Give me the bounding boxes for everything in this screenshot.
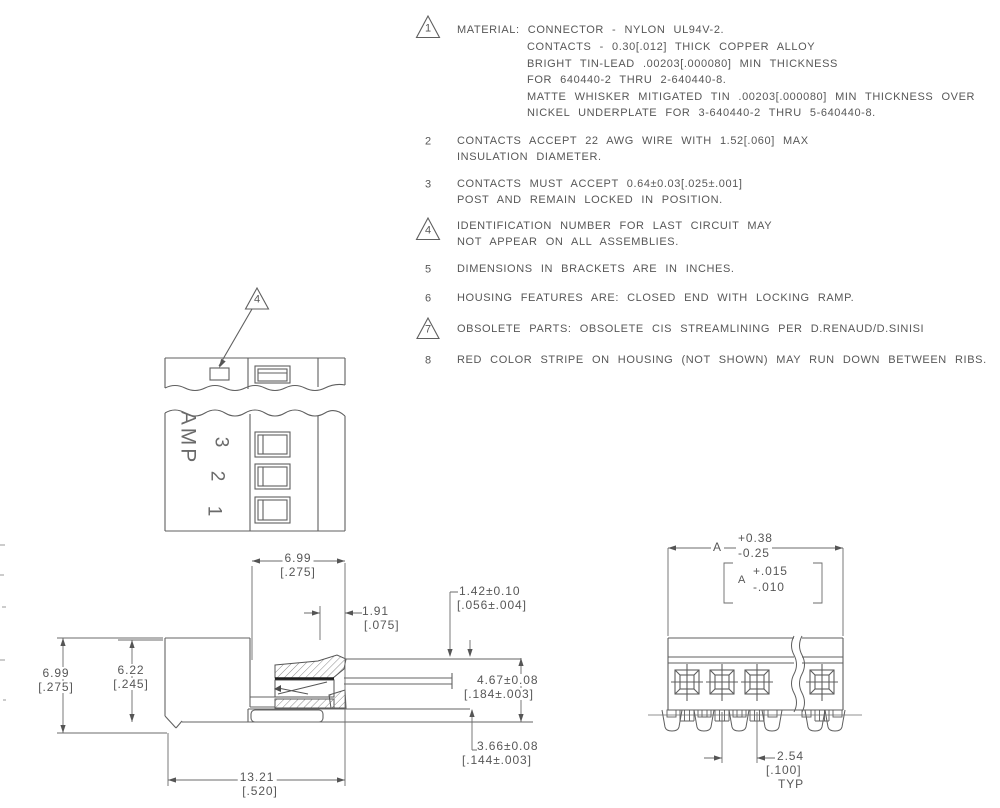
note-7-line-1: OBSOLETE PARTS: OBSOLETE CIS STREAMLININ… — [457, 324, 924, 335]
inch-bracket-left — [724, 563, 733, 603]
note-1-line-1: MATERIAL: CONNECTOR - NYLON UL94V-2. — [457, 25, 724, 36]
contact-cavity-last — [806, 664, 838, 701]
note-8-line-1: RED COLOR STRIPE ON HOUSING (NOT SHOWN) … — [457, 355, 987, 366]
margin-marks — [0, 545, 6, 700]
engineering-drawing-sheet: 1 MATERIAL: CONNECTOR - NYLON UL94V-2. C… — [0, 0, 1000, 808]
note-3-line-2: POST AND REMAIN LOCKED IN POSITION. — [457, 195, 723, 206]
note-4-line-2: NOT APPEAR ON ALL ASSEMBLIES. — [457, 237, 679, 248]
break-gap — [794, 637, 802, 709]
bottom-ribs — [667, 710, 842, 721]
note-6-number: 6 — [425, 294, 431, 305]
dim-inner-height-in: [.245] — [111, 678, 150, 690]
note-balloon-triangles — [417, 16, 440, 339]
dim-offset-in: [.075] — [364, 619, 399, 631]
brand-marking: AMP — [178, 411, 199, 466]
note-4-number: 4 — [425, 226, 431, 237]
circuit-id-recess — [210, 368, 229, 380]
circuit-number-2: 2 — [208, 471, 227, 482]
dim-pitch-mm: 2.54 — [777, 750, 804, 762]
dim-tab-in: [.056±.004] — [457, 599, 527, 611]
contact-cavity-3 — [741, 664, 773, 701]
note-8-number: 8 — [425, 356, 431, 367]
dim-a-label: A — [711, 541, 724, 553]
dim-inner-height-mm: 6.22 — [116, 664, 147, 676]
inch-bracket-right — [813, 563, 822, 603]
note-3-line-1: CONTACTS MUST ACCEPT 0.64±0.03[.025±.001… — [457, 179, 743, 190]
front-view — [662, 638, 845, 731]
dim-a-inch-minus: -.010 — [753, 581, 785, 593]
note-1-line-6: NICKEL UNDERPLATE FOR 3-640440-2 THRU 5-… — [527, 108, 876, 119]
note-1-line-5: MATTE WHISKER MITIGATED TIN .00203[.0000… — [527, 92, 975, 103]
section-view-contact — [274, 655, 346, 708]
dim-pitch-in: [.100] — [766, 764, 801, 776]
dim-tab-mm: 1.42±0.10 — [459, 585, 520, 597]
dim-offset-mm: 1.91 — [362, 605, 389, 617]
note-2-number: 2 — [425, 137, 431, 148]
dim-a-inch-label: A — [738, 575, 746, 586]
note-6-line-1: HOUSING FEATURES ARE: CLOSED END WITH LO… — [457, 293, 854, 304]
note-5-line-1: DIMENSIONS IN BRACKETS ARE IN INCHES. — [457, 264, 735, 275]
dim-lead-depth-mm: 3.66±0.08 — [477, 740, 538, 752]
dim-cavity-width-in: [.275] — [278, 566, 317, 578]
note-2-line-1: CONTACTS ACCEPT 22 AWG WIRE WITH 1.52[.0… — [457, 136, 809, 147]
dim-a-inch-plus: +.015 — [753, 565, 788, 577]
note-1-number: 1 — [425, 24, 431, 35]
dim-housing-height-mm: 6.99 — [41, 667, 72, 679]
dim-post-depth-in: [.184±.003] — [462, 688, 536, 700]
note-2-line-2: INSULATION DIAMETER. — [457, 152, 602, 163]
note-1-line-3: BRIGHT TIN-LEAD .00203[.000080] MIN THIC… — [527, 59, 838, 70]
circuit-number-1: 1 — [205, 506, 224, 517]
dim-a-minus: -0.25 — [736, 547, 772, 559]
dim-housing-height-in: [.275] — [36, 681, 75, 693]
contact-cavity-1 — [671, 664, 703, 701]
note-4-line-1: IDENTIFICATION NUMBER FOR LAST CIRCUIT M… — [457, 221, 772, 232]
note-5-number: 5 — [425, 265, 431, 276]
note-3-number: 3 — [425, 180, 431, 191]
dim-pitch-typ: TYP — [778, 778, 804, 790]
contact-bottom-hatched — [275, 699, 334, 708]
note-1-line-2: CONTACTS - 0.30[.012] THICK COPPER ALLOY — [527, 42, 815, 53]
dim-post-depth-mm: 4.67±0.08 — [475, 674, 540, 686]
circuit-number-3: 3 — [212, 437, 231, 448]
contact-top-hatched — [275, 655, 346, 678]
dim-overall-length-mm: 13.21 — [238, 771, 277, 783]
dim-lead-depth-in: [.144±.003] — [462, 754, 532, 766]
note-7-number: 7 — [425, 325, 431, 336]
note-1-line-4: FOR 640440-2 THRU 2-640440-8. — [527, 75, 726, 86]
dim-cavity-width-mm: 6.99 — [283, 552, 314, 564]
dim-a-plus: +0.38 — [736, 532, 775, 544]
balloon-4-ref: 4 — [254, 295, 260, 306]
dim-overall-length-in: [.520] — [240, 785, 279, 797]
contact-cavity-2 — [706, 664, 738, 701]
